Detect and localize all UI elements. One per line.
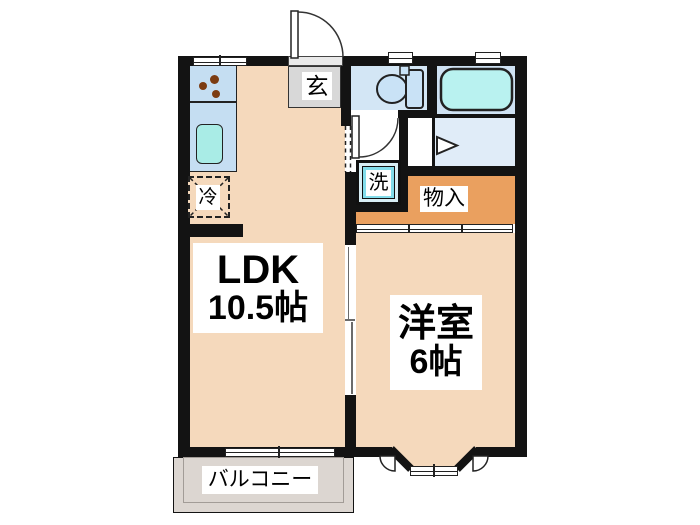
- bath-divider-line: [432, 118, 435, 166]
- bay-window-tick: [433, 464, 435, 477]
- label-entrance: 玄: [302, 72, 332, 100]
- storage-top-wall: [408, 166, 515, 176]
- wall-bottom-western-right: [476, 447, 527, 457]
- entrance-door-swing-arc: [298, 12, 343, 57]
- partition-upper: [341, 66, 351, 126]
- dressing-area-floor: [408, 118, 432, 166]
- storage-floor-strip: [356, 212, 408, 224]
- label-washer: 洗: [366, 170, 391, 196]
- wall-bottom-western-left: [356, 447, 392, 457]
- counter-divider: [190, 101, 237, 103]
- balcony-text: バルコニー: [208, 469, 313, 491]
- storage-text: 物入: [423, 188, 465, 210]
- ldk-size: 10.5帖: [208, 291, 308, 327]
- bath-window: [475, 52, 501, 64]
- ldk-balcony-window: [225, 448, 335, 457]
- partition-lower: [345, 395, 356, 457]
- bath-tub-area-floor: [437, 66, 515, 114]
- ldk-balcony-window-tick: [278, 446, 280, 458]
- fridge-text: 冷: [198, 188, 217, 208]
- ldk-western-sliding-door: [345, 245, 355, 395]
- label-western-room: 洋室 6帖: [390, 295, 482, 390]
- western-room-size: 6帖: [410, 345, 463, 381]
- entrance-text: 玄: [306, 74, 329, 98]
- toilet-bath-divider-wall: [427, 66, 437, 118]
- kitchen-stub-wall: [178, 224, 243, 237]
- entrance-door-leaf: [291, 11, 298, 58]
- label-fridge: 冷: [196, 185, 220, 210]
- wall-left: [178, 56, 190, 455]
- label-storage: 物入: [420, 186, 468, 212]
- partition-mid: [345, 172, 356, 245]
- kitchen-sink-icon: [196, 124, 223, 164]
- washer-text: 洗: [369, 173, 389, 194]
- stove-burner-icon: [199, 82, 207, 90]
- floor-plan: LDK 10.5帖 洋室 6帖 バルコニー 玄 物入 洗 冷: [0, 0, 700, 525]
- stove-burner-icon: [210, 75, 219, 84]
- wall-right: [515, 56, 527, 457]
- stove-burner-icon: [212, 90, 220, 98]
- ldk-name: LDK: [217, 249, 299, 291]
- label-ldk: LDK 10.5帖: [193, 243, 323, 333]
- western-room-name: 洋室: [398, 305, 474, 345]
- under-washer-wall: [356, 205, 408, 212]
- toilet-window: [388, 52, 413, 64]
- bay-casement-arc-right: [473, 456, 488, 471]
- toilet-room-floor: [351, 66, 427, 110]
- closet-sliding-doors: [356, 224, 513, 233]
- entrance-sill: [288, 56, 343, 66]
- bath-floor: [435, 118, 515, 166]
- bay-casement-arc-left: [380, 456, 395, 471]
- label-balcony: バルコニー: [202, 466, 318, 494]
